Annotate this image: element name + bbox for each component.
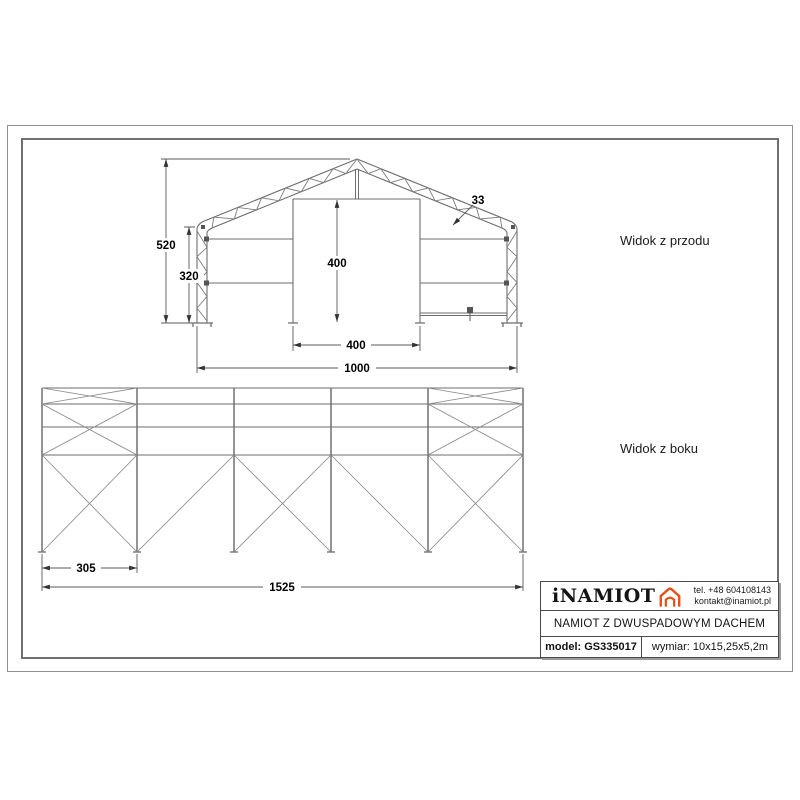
front-view-drawing: 520 320 400 400 1000 33	[140, 130, 560, 380]
dim-total-length: 1525	[269, 582, 295, 594]
model-number: model: GS335017	[541, 637, 642, 657]
front-view-label: Widok z przodu	[620, 233, 710, 248]
truss-chords	[197, 159, 517, 323]
drawing-sheet: 520 320 400 400 1000 33	[0, 0, 800, 800]
dimension-texts: 520 320 400 400 1000 33	[151, 195, 484, 375]
dim-total-height: 520	[156, 240, 175, 252]
contact-info: tel. +48 604108143 kontakt@inamiot.pl	[694, 585, 778, 607]
side-view-drawing: 305 1525	[20, 382, 540, 597]
dim-bay-width: 305	[76, 563, 96, 575]
bracing	[42, 388, 523, 552]
door-outline	[293, 199, 420, 323]
columns	[42, 388, 523, 552]
winch-detail	[467, 307, 473, 321]
horizontal-beams	[42, 388, 523, 455]
dim-total-width: 1000	[344, 363, 370, 375]
dim-truss-depth: 33	[472, 195, 485, 207]
product-name: NAMIOT Z DWUSPADOWYM DACHEM	[554, 618, 765, 630]
title-block-spec-row: model: GS335017 wymiar: 10x15,25x5,2m	[541, 637, 778, 657]
dim-wall-height: 320	[179, 271, 198, 283]
phone-number: tel. +48 604108143	[694, 585, 771, 596]
title-block: iNAMIOT tel. +48 604108143 kontakt@inami…	[540, 581, 779, 658]
brand-name: iNAMIOT	[552, 587, 655, 606]
rail-connectors	[201, 225, 515, 286]
title-block-header-row: iNAMIOT tel. +48 604108143 kontakt@inami…	[541, 582, 778, 611]
base-plates	[191, 323, 523, 327]
tent-house-icon	[658, 586, 682, 607]
truss-webbing	[197, 159, 517, 321]
king-post	[356, 169, 359, 199]
brand-logo: iNAMIOT	[541, 586, 682, 607]
overall-dimensions: wymiar: 10x15,25x5,2m	[642, 637, 778, 657]
dimension-texts: 305 1525	[71, 561, 301, 594]
side-view-label: Widok z boku	[620, 441, 698, 456]
email-address: kontakt@inamiot.pl	[694, 596, 771, 607]
dim-door-height: 400	[327, 258, 346, 270]
wall-rails	[207, 239, 507, 316]
title-block-product-row: NAMIOT Z DWUSPADOWYM DACHEM	[541, 611, 778, 637]
dim-door-width: 400	[346, 340, 365, 352]
